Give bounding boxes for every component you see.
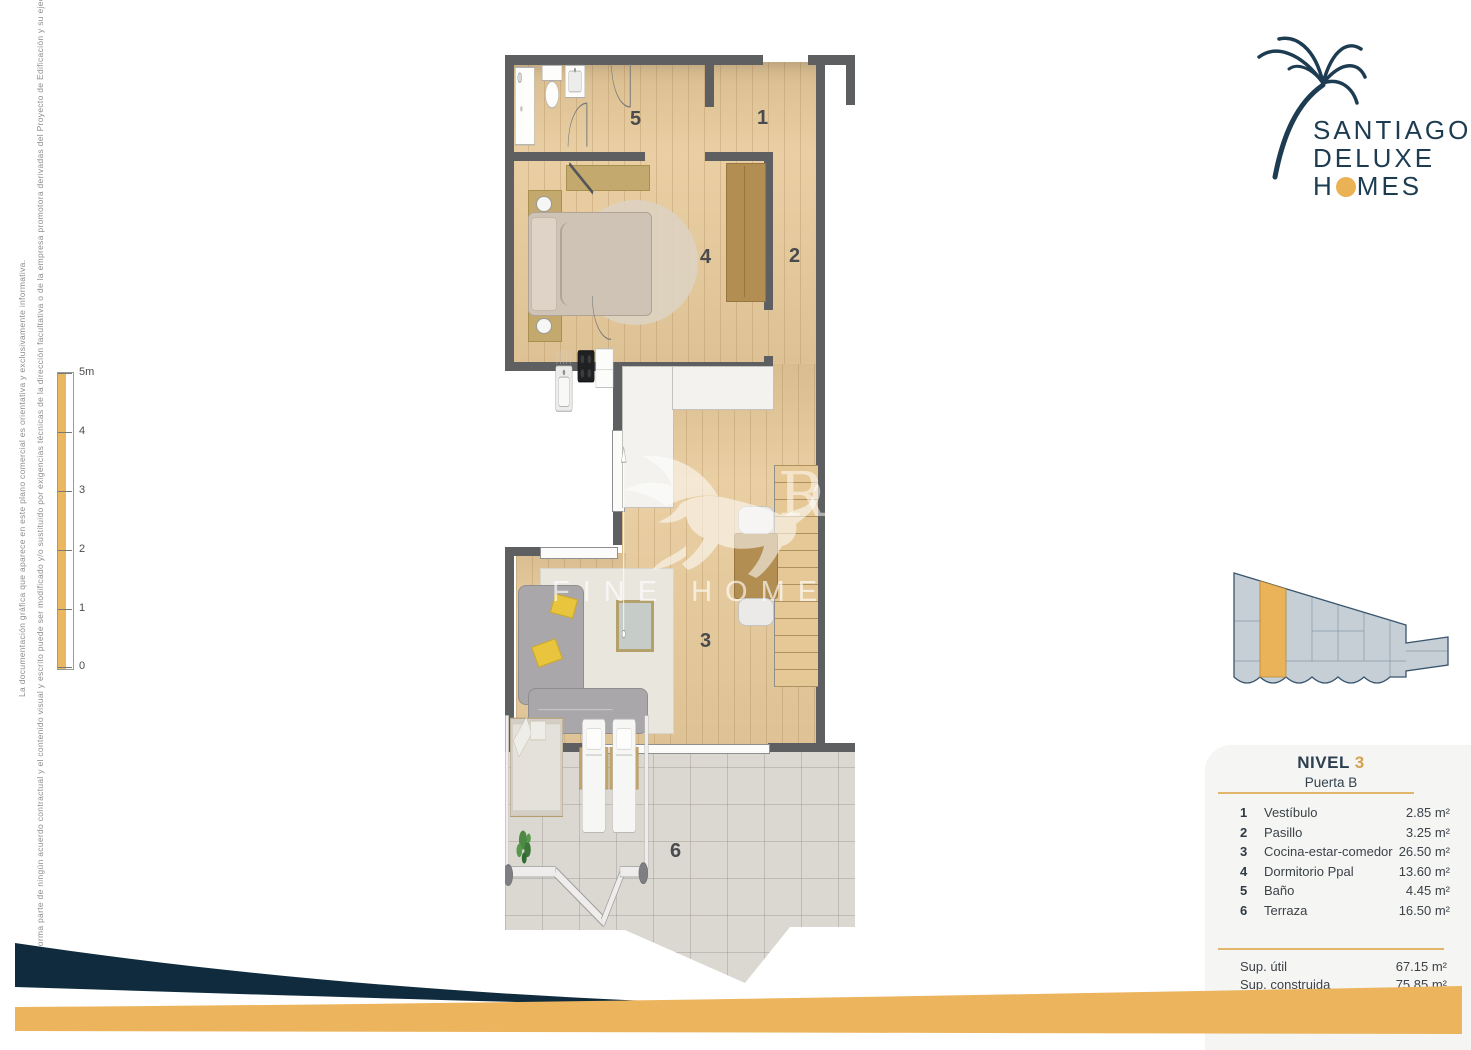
room-legend: 1Vestíbulo2.85 m² 2Pasillo3.25 m² 3Cocin… xyxy=(1240,803,1450,920)
scale-tick xyxy=(58,373,72,374)
door-leaf-bedroom xyxy=(569,164,593,193)
floor-plan-page: 1 2 3 4 5 6 sion Realty FINE HOMES & VIL… xyxy=(0,0,1471,1050)
sun-dot-icon xyxy=(1336,177,1356,197)
scale-label-5m: 5m xyxy=(79,366,94,378)
unit-door: Puerta B xyxy=(1231,775,1431,790)
shower xyxy=(515,67,534,144)
legend-row: 4Dormitorio Ppal13.60 m² xyxy=(1240,862,1450,882)
watermark-left-fragment: sion xyxy=(482,462,611,535)
cooktop xyxy=(578,351,594,382)
bathroom-sink xyxy=(565,65,585,97)
disclaimer-line-1: La documentación gráfica que aparece en … xyxy=(17,260,27,697)
legend-row: 1Vestíbulo2.85 m² xyxy=(1240,803,1450,823)
room-marker-vestibulo: 1 xyxy=(757,107,768,130)
room-marker-terraza: 6 xyxy=(670,840,681,863)
door-arc-bedroom-hall xyxy=(592,296,611,339)
legend-row: 3Cocina-estar-comedor26.50 m² xyxy=(1240,842,1450,862)
key-plan-unit-highlight xyxy=(1260,581,1286,677)
toilet xyxy=(542,65,562,108)
brand-line-2: DELUXE xyxy=(1313,144,1471,172)
legend-row: 6Terraza16.50 m² xyxy=(1240,901,1450,921)
room-marker-pasillo: 2 xyxy=(789,245,800,268)
scale-label-2: 2 xyxy=(79,543,85,555)
brand-line-3-post: MES xyxy=(1357,171,1422,201)
watermark-tagline: FINE HOMES & VILLAS xyxy=(552,576,1113,609)
door-arc-entry xyxy=(611,64,630,107)
room-marker-bano: 5 xyxy=(630,108,641,131)
scale-tick xyxy=(58,609,72,610)
watermark-right-fragment: Realty xyxy=(778,458,978,531)
brand-wordmark: SANTIAGO DELUXE HMES xyxy=(1313,116,1471,200)
unit-level: NIVEL 3 xyxy=(1231,753,1431,773)
unit-header: NIVEL 3 Puerta B xyxy=(1231,753,1431,790)
brand-line-1: SANTIAGO xyxy=(1313,116,1471,144)
terrace-daybed xyxy=(510,717,562,816)
unit-level-label: NIVEL xyxy=(1297,753,1349,772)
total-row: Sup. construida75.85 m² xyxy=(1240,976,1447,994)
scale-tick xyxy=(58,491,72,492)
scale-bar-fill xyxy=(58,373,66,669)
terrace-column-left xyxy=(505,865,513,886)
kitchen-sink xyxy=(556,351,572,411)
scale-label-3: 3 xyxy=(79,484,85,496)
total-row: Sup. útil67.15 m² xyxy=(1240,958,1447,976)
sun-lounger-right xyxy=(610,719,639,832)
legend-divider xyxy=(1218,792,1414,794)
room-marker-cocina: 3 xyxy=(700,630,711,653)
totals-divider xyxy=(1218,948,1444,950)
door-arc-bathroom xyxy=(568,103,587,146)
terrace-plant xyxy=(516,831,530,864)
scale-tick xyxy=(58,432,72,433)
scale-tick xyxy=(58,667,72,668)
unit-level-number: 3 xyxy=(1355,753,1365,772)
legend-row: 5Baño4.45 m² xyxy=(1240,881,1450,901)
building-key-plan xyxy=(1228,565,1458,700)
surface-totals: Sup. útil67.15 m² Sup. construida75.85 m… xyxy=(1240,958,1447,993)
disclaimer-line-2: No forma parte de ningún acuerdo contrac… xyxy=(35,0,45,963)
scale-label-0: 0 xyxy=(79,660,85,672)
scale-label-1: 1 xyxy=(79,602,85,614)
scale-label-4: 4 xyxy=(79,425,85,437)
scale-tick xyxy=(58,550,72,551)
sun-lounger-left xyxy=(580,719,609,832)
legend-row: 2Pasillo3.25 m² xyxy=(1240,823,1450,843)
room-marker-dormitorio: 4 xyxy=(700,246,711,269)
brand-line-3-pre: H xyxy=(1313,171,1335,201)
brand-line-3: HMES xyxy=(1313,172,1471,200)
fridge xyxy=(596,349,613,388)
scale-bar xyxy=(57,372,74,670)
terrace-column-right xyxy=(639,863,648,884)
